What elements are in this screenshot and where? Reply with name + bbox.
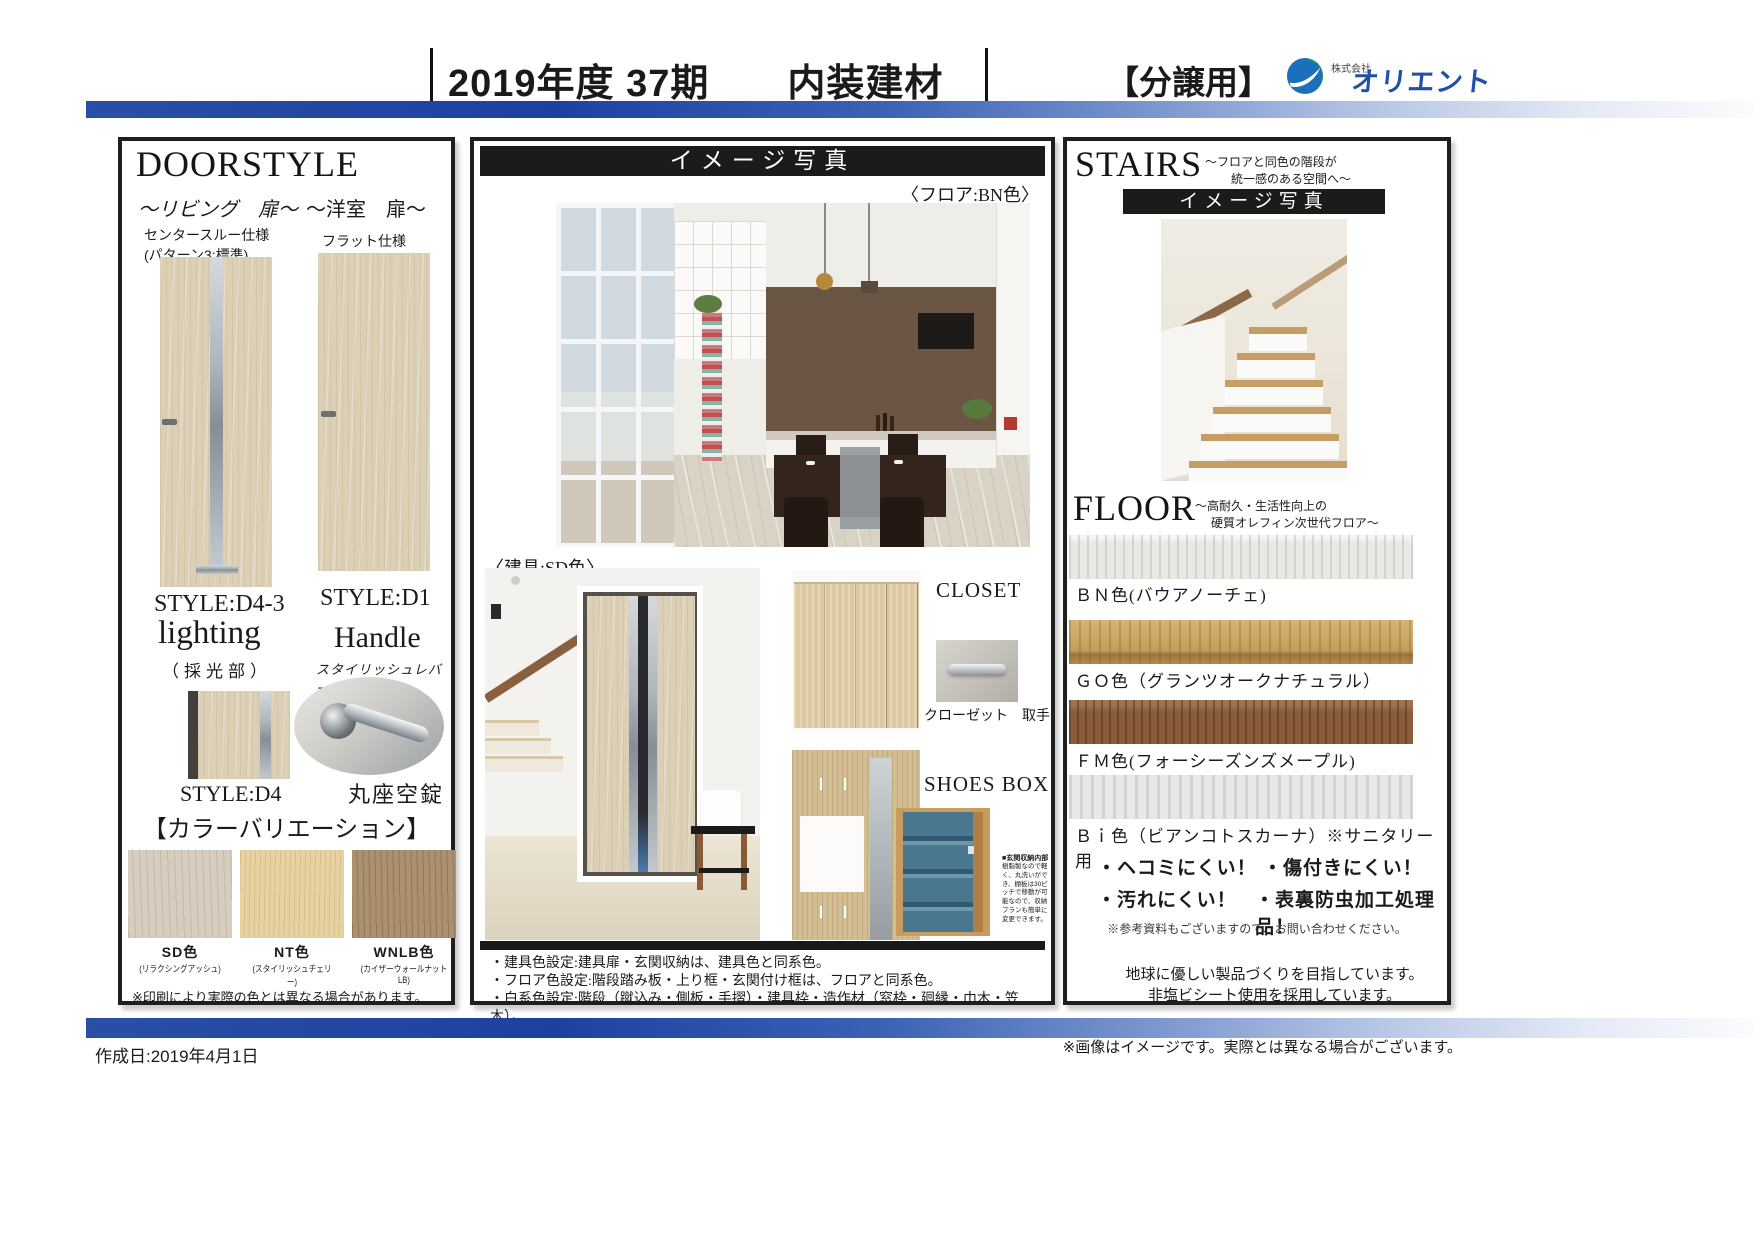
- speaker: [491, 604, 501, 619]
- door-leaf-left: [587, 596, 629, 872]
- gallery-notes: ・建具色設定:建具扉・玄関収納は、建具色と同系色。 ・フロア色設定:階段踏み板・…: [490, 955, 1051, 1027]
- created-date: 作成日:2019年4月1日: [95, 1042, 258, 1067]
- page-title: 2019年度 37期 内装建材: [448, 52, 943, 107]
- doorstyle-title: DOORSTYLE: [136, 143, 359, 185]
- mosaic-pillar: [702, 311, 722, 461]
- handle-title: Handle: [334, 621, 421, 655]
- gallery-note-1: ・建具色設定:建具扉・玄関収納は、建具色と同系色。: [490, 955, 1051, 973]
- swatch-nt-name: NT色: [274, 944, 310, 960]
- lighting-photo-strip: [260, 691, 271, 779]
- swatch-wnlb-name: WNLB色: [374, 944, 435, 960]
- door-d43-strip-sill: [196, 565, 238, 574]
- shoesbox-open-shelf: [800, 816, 864, 892]
- stair-step-1: [485, 720, 539, 736]
- tread-3: [1213, 407, 1331, 432]
- plant-right: [962, 399, 992, 419]
- doorstyle-panel: DOORSTYLE ～リビング 扉～ ～洋室 扉～ センタースルー仕様 (パター…: [118, 137, 455, 1005]
- tread-2: [1201, 434, 1339, 459]
- table-leg-2: [741, 834, 747, 890]
- stairs-photo: [1161, 219, 1347, 481]
- lighting-title: lighting: [158, 615, 261, 652]
- stairs-floor-panel: STAIRS ～フロアと同色の階段が 統一感のある空間へ～ イメージ写真 FLO…: [1063, 137, 1451, 1005]
- door-d1-image: [318, 253, 430, 571]
- swatch-nt-label: NT色 (スタイリッシュチェリー): [240, 942, 344, 988]
- closet-doors: [794, 582, 919, 728]
- tread-6: [1249, 327, 1307, 351]
- floor-strip-fm: [1069, 700, 1413, 744]
- shoesbox-hinge: [968, 846, 974, 854]
- stair-step-3: [485, 756, 563, 772]
- gallery-header-bar: イメージ写真: [480, 146, 1045, 176]
- door-strip-left: [629, 596, 638, 872]
- swatch-wnlb-desc: (カイザーウォールナットLB): [360, 962, 448, 985]
- stairs-photo-header-bar: イメージ写真: [1123, 189, 1385, 214]
- closet-handle-label: クローゼット 取手: [924, 705, 1050, 725]
- feature-dent: ・ヘコミにくい！: [1097, 853, 1257, 880]
- print-note: ※印刷により実際の色とは異なる場合があります。: [132, 987, 427, 1006]
- menu-board: [918, 313, 974, 349]
- door-d43-lighting-strip: [210, 257, 223, 565]
- catalog-page: 2019年度 37期 内装建材 【分譲用】 株式会社 オリエント DOORSTY…: [0, 0, 1754, 1240]
- door-photo: [485, 568, 760, 940]
- style-d4-label: STYLE:D4: [180, 781, 281, 807]
- glass-table-top: [691, 826, 755, 834]
- floor-label-bn: ＢＮ色(バウアノーチェ): [1075, 581, 1267, 606]
- shoesbox-handle-1: [820, 778, 822, 790]
- tread-5: [1237, 353, 1315, 378]
- table-runner: [840, 447, 880, 529]
- shoesbox-label: SHOES BOX: [924, 772, 1049, 797]
- plate-2: [894, 460, 903, 464]
- red-kettle: [1004, 417, 1017, 430]
- stairs-title: STAIRS: [1075, 143, 1202, 185]
- eco-note: 地球に優しい製品づくりを目指しています。 非塩ビシート使用を採用しています。: [1107, 963, 1442, 1005]
- footer-accent-bar: [86, 1018, 1754, 1038]
- header-tag: 【分譲用】: [1106, 56, 1271, 104]
- lighting-photo-door2: [271, 691, 290, 779]
- plant-left: [694, 295, 722, 313]
- pendant-cord-1: [824, 203, 826, 275]
- pendant-cord-2: [868, 203, 870, 283]
- plate-1: [806, 461, 815, 465]
- chair-front-right: [880, 497, 924, 547]
- company-logotype: オリエント: [1350, 60, 1494, 99]
- swatch-sd-desc: (リラクシングアッシュ): [136, 962, 224, 975]
- eco-note-line2: 非塩ビシート使用を採用しています。: [1107, 984, 1442, 1005]
- floor-label-go: ＧＯ色（グランツオークナチュラル）: [1075, 667, 1381, 692]
- western-door-label: ～洋室 扉～: [306, 193, 426, 222]
- handle-photo: [294, 677, 444, 775]
- chair-front-left: [784, 497, 828, 547]
- door-gap: [638, 596, 648, 872]
- orient-logo-icon: [1286, 57, 1324, 95]
- living-door-label: ～リビング 扉～: [138, 193, 298, 222]
- gallery-panel: イメージ写真 〈フロア:BN色〉: [470, 137, 1055, 1005]
- feature-stain: ・汚れにくい！: [1097, 885, 1237, 912]
- window-mullions: [556, 203, 674, 547]
- shoesbox-note-title: ■玄関収納内部: [1002, 853, 1049, 863]
- door-d43-handle: [162, 419, 177, 425]
- shoesbox-open-door: [973, 812, 983, 932]
- floor-strip-bi: [1069, 775, 1413, 819]
- swatch-sd: [128, 850, 232, 938]
- gallery-divider-bar: [480, 941, 1045, 950]
- lock-label: 丸座空錠: [348, 777, 444, 809]
- closet-handle-photo: [936, 640, 1018, 702]
- shoesbox-interior-photo: [896, 808, 990, 936]
- shoesbox-note-body: 樹脂製なので軽く、丸洗いができ、棚板は30ピッチで移動が可能なので、収納プランも…: [1002, 863, 1049, 924]
- lighting-photo: [188, 691, 290, 779]
- glass-table-shelf: [699, 868, 749, 873]
- style-d1-label: STYLE:D1: [320, 585, 431, 612]
- living-spec-line1: センタースルー仕様: [144, 227, 269, 243]
- stair-handrail: [485, 634, 582, 703]
- shoesbox-note: ■玄関収納内部 樹脂製なので軽く、丸洗いができ、棚板は30ピッチで移動が可能なの…: [1002, 853, 1049, 924]
- shoesbox-handle-2: [844, 778, 846, 790]
- image-disclaimer: ※画像はイメージです。実際とは異なる場合がございます。: [1063, 1036, 1462, 1057]
- door-leaf-right: [657, 596, 695, 872]
- swatch-sd-label: SD色 (リラクシングアッシュ): [128, 942, 232, 975]
- door-strip-right: [648, 596, 657, 872]
- swatch-wnlb-label: WNLB色 (カイザーウォールナットLB): [352, 942, 456, 985]
- header-divider-left: [430, 48, 433, 104]
- closet-handle-bar: [948, 664, 1006, 674]
- tread-1: [1189, 461, 1347, 481]
- wall-handrail: [1271, 247, 1347, 310]
- stairs-subtitle-line1: ～フロアと同色の階段が: [1205, 153, 1351, 170]
- floor-title: FLOOR: [1073, 487, 1196, 529]
- stairs-subtitle-line2: 統一感のある空間へ～: [1205, 170, 1351, 187]
- floor-strip-bn: [1069, 535, 1413, 579]
- style-d43-label: STYLE:D4-3: [154, 591, 285, 618]
- bottle-1: [876, 415, 880, 432]
- eco-note-line1: 地球に優しい製品づくりを目指しています。: [1107, 963, 1442, 984]
- tread-4: [1225, 380, 1323, 405]
- closet-photo: [792, 570, 921, 733]
- shoesbox-mirror: [870, 758, 892, 940]
- floor-subtitle-line1: ～高耐久・生活性向上の: [1195, 497, 1379, 514]
- bottle-3: [890, 416, 894, 432]
- floor-label-fm: ＦＭ色(フォーシーズンズメープル): [1075, 747, 1356, 772]
- shoesbox-handle-3: [820, 906, 822, 918]
- western-door-spec: フラット仕様: [322, 231, 406, 251]
- header-divider-right: [985, 48, 988, 104]
- table-leg-1: [697, 834, 703, 890]
- gallery-note-2: ・フロア色設定:階段踏み板・上り框・玄関付け框は、フロアと同系色。: [490, 973, 1051, 991]
- stairs-subtitle: ～フロアと同色の階段が 統一感のある空間へ～: [1205, 153, 1351, 187]
- pendant-lamp-gold: [816, 273, 833, 290]
- swatch-wnlb: [352, 850, 456, 938]
- door-d43-image: [160, 257, 272, 587]
- bottle-2: [883, 413, 887, 432]
- color-variation-title: 【カラーバリエーション】: [122, 809, 451, 844]
- shoesbox-shelves: [903, 812, 973, 932]
- main-interior-photo: [556, 203, 1030, 547]
- shoesbox-handle-4: [844, 906, 846, 918]
- floor-subtitle-line2: 硬質オレフィン次世代フロア～: [1195, 514, 1379, 531]
- door-d1-handle: [321, 411, 336, 417]
- swatch-nt: [240, 850, 344, 938]
- ceiling-spot: [511, 576, 520, 585]
- stair-step-2: [485, 738, 551, 754]
- feature-scratch: ・傷付きにくい！: [1263, 853, 1423, 880]
- swatch-nt-desc: (スタイリッシュチェリー): [248, 962, 336, 988]
- lighting-subtitle: （採光部）: [162, 657, 272, 682]
- lighting-photo-door: [198, 691, 260, 779]
- header-accent-bar: [86, 101, 1754, 118]
- swatch-sd-name: SD色: [162, 944, 198, 960]
- reference-note: ※参考資料もございますので、お問い合わせください。: [1067, 920, 1447, 937]
- floor-strip-go: [1069, 620, 1413, 664]
- closet-label: CLOSET: [936, 578, 1021, 603]
- pendant-lamp-shade: [861, 281, 878, 293]
- lighting-photo-gap: [188, 691, 198, 779]
- floor-subtitle: ～高耐久・生活性向上の 硬質オレフィン次世代フロア～: [1195, 497, 1379, 531]
